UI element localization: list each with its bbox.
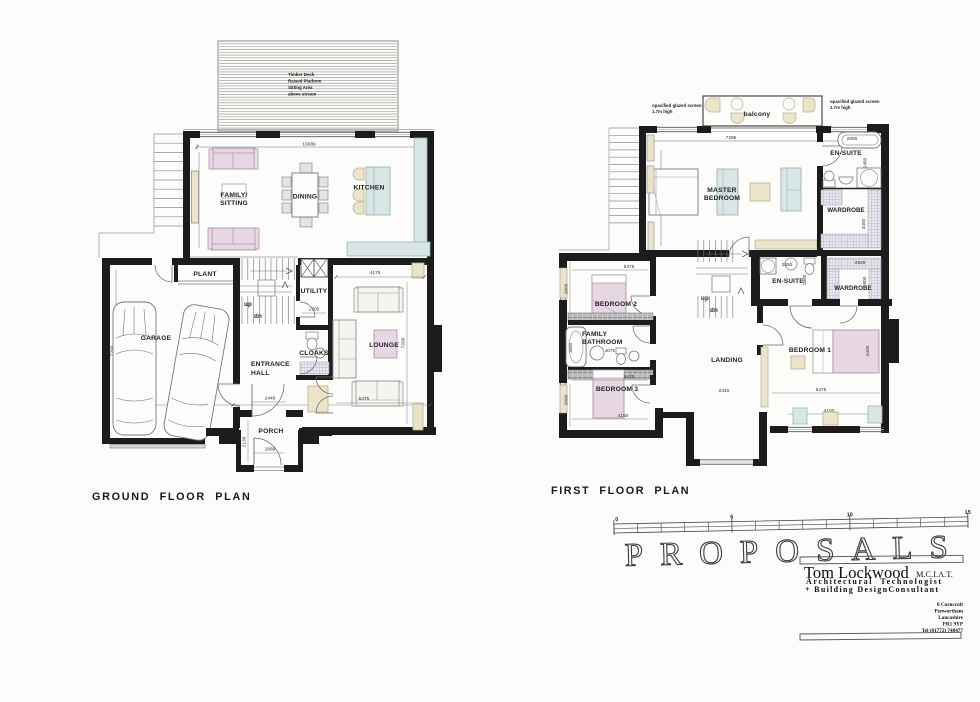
svg-text:FAMILY/: FAMILY/ xyxy=(220,192,247,199)
svg-text:CLOAKS: CLOAKS xyxy=(299,350,329,357)
svg-text:2600: 2600 xyxy=(564,394,570,405)
svg-text:Timber Deck: Timber Deck xyxy=(288,72,315,77)
svg-text:1800: 1800 xyxy=(802,274,808,285)
svg-text:2685: 2685 xyxy=(847,136,858,142)
svg-text:1300: 1300 xyxy=(309,307,320,313)
svg-text:2450: 2450 xyxy=(863,157,869,168)
svg-text:Raised Platform: Raised Platform xyxy=(288,79,322,84)
svg-text:+ Building DesignConsultant: + Building DesignConsultant xyxy=(805,585,938,594)
svg-text:5475: 5475 xyxy=(359,396,370,402)
svg-text:10089: 10089 xyxy=(302,142,316,148)
svg-text:2446: 2446 xyxy=(265,396,276,402)
svg-text:GARAGE: GARAGE xyxy=(141,335,172,342)
svg-text:1600: 1600 xyxy=(568,342,573,353)
svg-text:up: up xyxy=(244,301,252,308)
svg-text:7200: 7200 xyxy=(401,337,407,348)
svg-text:2929: 2929 xyxy=(855,260,866,266)
svg-text:LOUNGE: LOUNGE xyxy=(369,342,399,349)
svg-text:5475: 5475 xyxy=(816,387,827,393)
svg-text:EN-SUITE: EN-SUITE xyxy=(772,278,804,285)
svg-text:5: 5 xyxy=(730,515,733,521)
svg-text:KITCHEN: KITCHEN xyxy=(353,185,384,192)
svg-text:DINING: DINING xyxy=(293,194,318,201)
svg-text:balcony: balcony xyxy=(744,111,771,118)
svg-text:LANDING: LANDING xyxy=(711,357,743,364)
svg-text:FAMILY: FAMILY xyxy=(582,331,607,338)
svg-text:PR1 9YP: PR1 9YP xyxy=(943,622,964,628)
svg-text:1.7m high: 1.7m high xyxy=(830,105,851,110)
svg-text:Sitting Area: Sitting Area xyxy=(288,85,313,90)
svg-text:above stream: above stream xyxy=(288,92,316,97)
svg-text:FIRST FLOOR PLAN: FIRST FLOOR PLAN xyxy=(551,485,690,497)
svg-text:4150: 4150 xyxy=(618,413,629,419)
svg-text:3075: 3075 xyxy=(605,348,616,353)
svg-text:BEDROOM 2: BEDROOM 2 xyxy=(595,301,637,308)
svg-text:0: 0 xyxy=(615,517,618,523)
svg-text:EN-SUITE: EN-SUITE xyxy=(830,150,862,157)
svg-text:ENTRANCE: ENTRANCE xyxy=(251,361,290,368)
svg-text:5475: 5475 xyxy=(624,374,635,380)
svg-text:PORCH: PORCH xyxy=(258,428,283,435)
svg-text:dn: dn xyxy=(254,313,262,320)
svg-text:7295: 7295 xyxy=(726,135,737,141)
svg-text:BEDROOM 1: BEDROOM 1 xyxy=(789,347,831,354)
svg-text:BEDROOM: BEDROOM xyxy=(704,195,741,202)
svg-text:10: 10 xyxy=(847,512,853,518)
svg-text:opacified glazed screen: opacified glazed screen xyxy=(652,103,702,108)
svg-text:opacified glazed screen: opacified glazed screen xyxy=(830,99,880,104)
svg-text:up: up xyxy=(701,295,709,302)
svg-text:5475: 5475 xyxy=(624,264,635,270)
svg-text:3450: 3450 xyxy=(861,218,867,229)
svg-text:4400: 4400 xyxy=(865,345,871,356)
svg-text:GROUND FLOOR PLAN: GROUND FLOOR PLAN xyxy=(92,491,251,503)
svg-text:2440: 2440 xyxy=(719,388,730,394)
svg-text:SITTING: SITTING xyxy=(220,200,248,207)
svg-text:8 Corncroft: 8 Corncroft xyxy=(937,602,963,608)
svg-text:dn: dn xyxy=(710,307,718,314)
svg-text:MASTER: MASTER xyxy=(707,187,736,194)
svg-text:2850: 2850 xyxy=(782,262,793,268)
svg-text:UTILITY: UTILITY xyxy=(301,288,328,295)
svg-text:2600: 2600 xyxy=(564,283,570,294)
svg-text:2130: 2130 xyxy=(242,436,248,447)
svg-text:2689: 2689 xyxy=(265,447,276,453)
svg-text:1800: 1800 xyxy=(862,276,868,287)
svg-text:Lancashire: Lancashire xyxy=(938,615,963,621)
svg-text:HALL: HALL xyxy=(251,370,270,377)
svg-text:1.7m high: 1.7m high xyxy=(652,109,673,114)
svg-text:WARDROBE: WARDROBE xyxy=(827,207,865,214)
svg-text:4175: 4175 xyxy=(370,270,381,276)
svg-text:Penwortham: Penwortham xyxy=(934,609,963,615)
svg-text:BATHROOM: BATHROOM xyxy=(582,339,623,346)
svg-text:15: 15 xyxy=(965,510,971,516)
svg-text:PLANT: PLANT xyxy=(193,271,217,278)
